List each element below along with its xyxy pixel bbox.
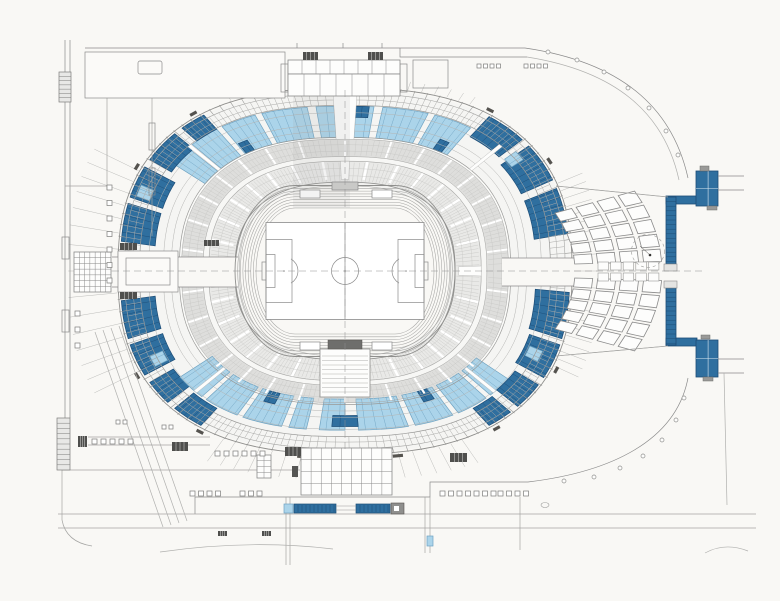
plan-canvas: [0, 0, 780, 601]
stadium-plan: [0, 0, 780, 601]
